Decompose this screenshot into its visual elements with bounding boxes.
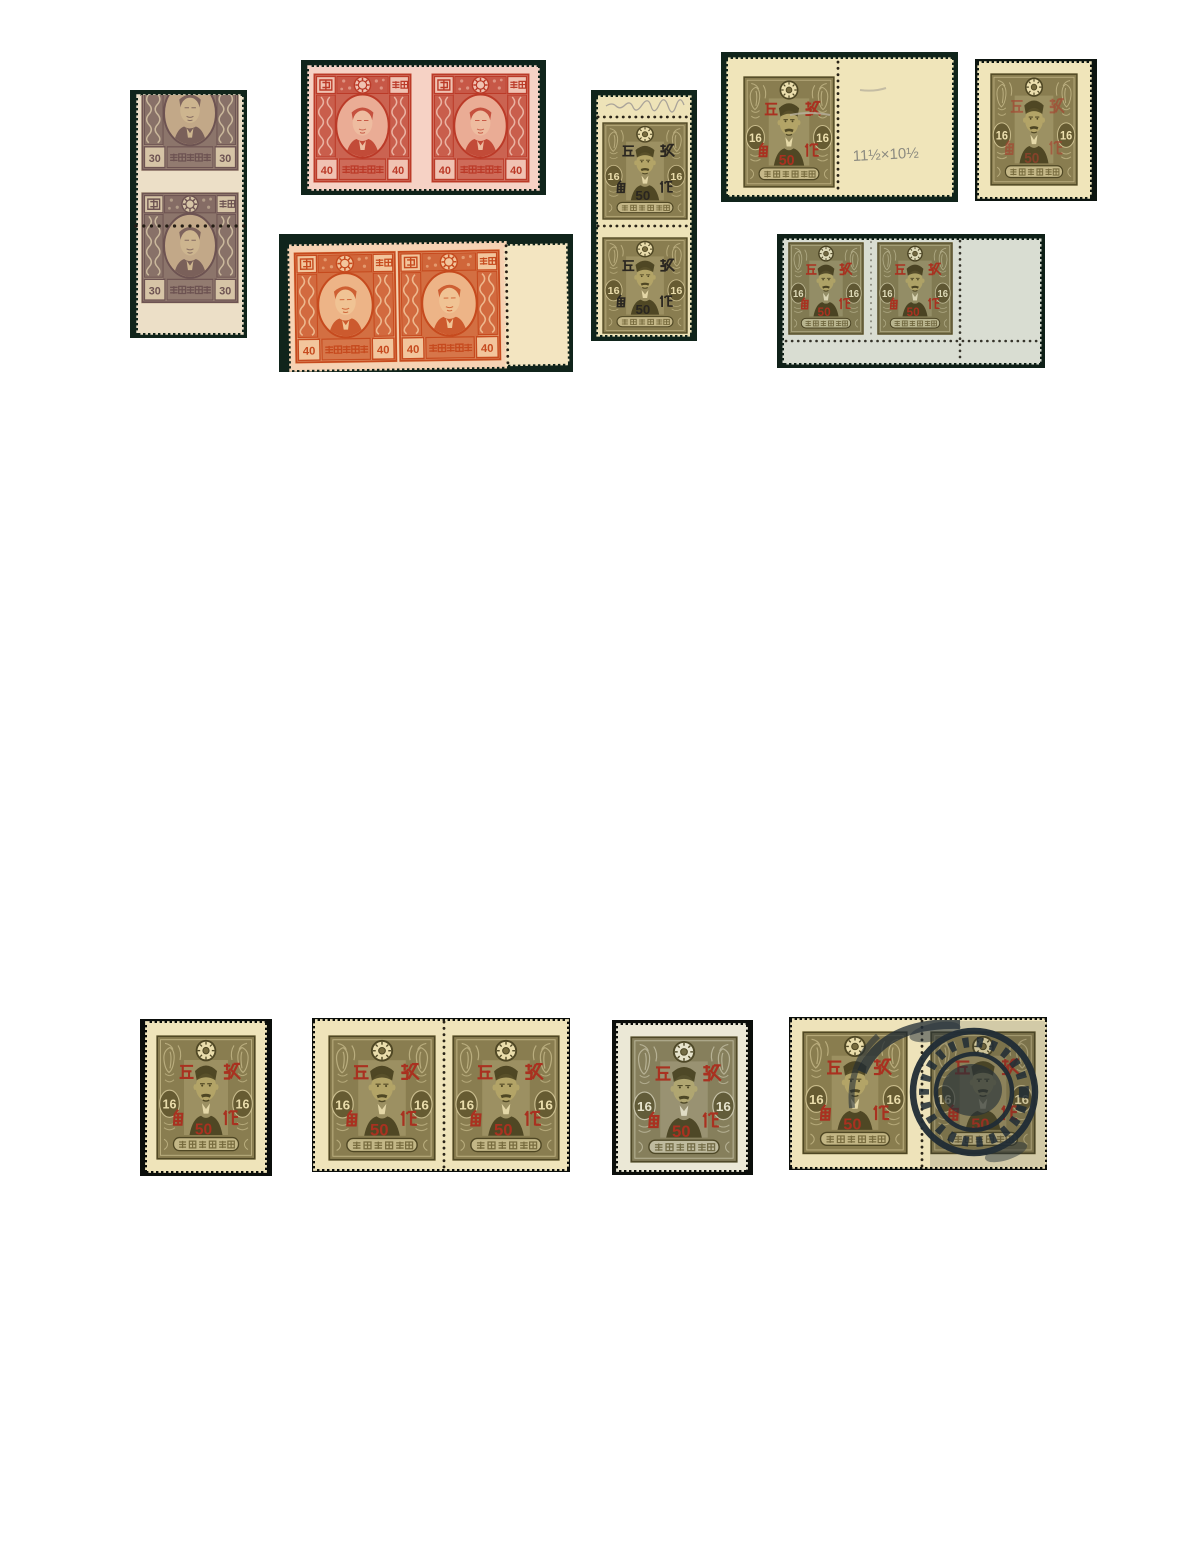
svg-text:30: 30 <box>149 285 161 297</box>
svg-text:40: 40 <box>377 344 390 356</box>
svg-text:40: 40 <box>407 344 420 356</box>
svg-text:30: 30 <box>219 285 231 297</box>
svg-text:30: 30 <box>149 153 161 165</box>
svg-text:40: 40 <box>510 165 522 177</box>
svg-text:40: 40 <box>439 165 451 177</box>
svg-text:11½×10½: 11½×10½ <box>852 145 919 165</box>
svg-text:40: 40 <box>392 165 404 177</box>
svg-text:40: 40 <box>321 165 333 177</box>
svg-text:30: 30 <box>219 153 231 165</box>
svg-text:40: 40 <box>303 346 316 358</box>
svg-text:40: 40 <box>481 343 494 355</box>
